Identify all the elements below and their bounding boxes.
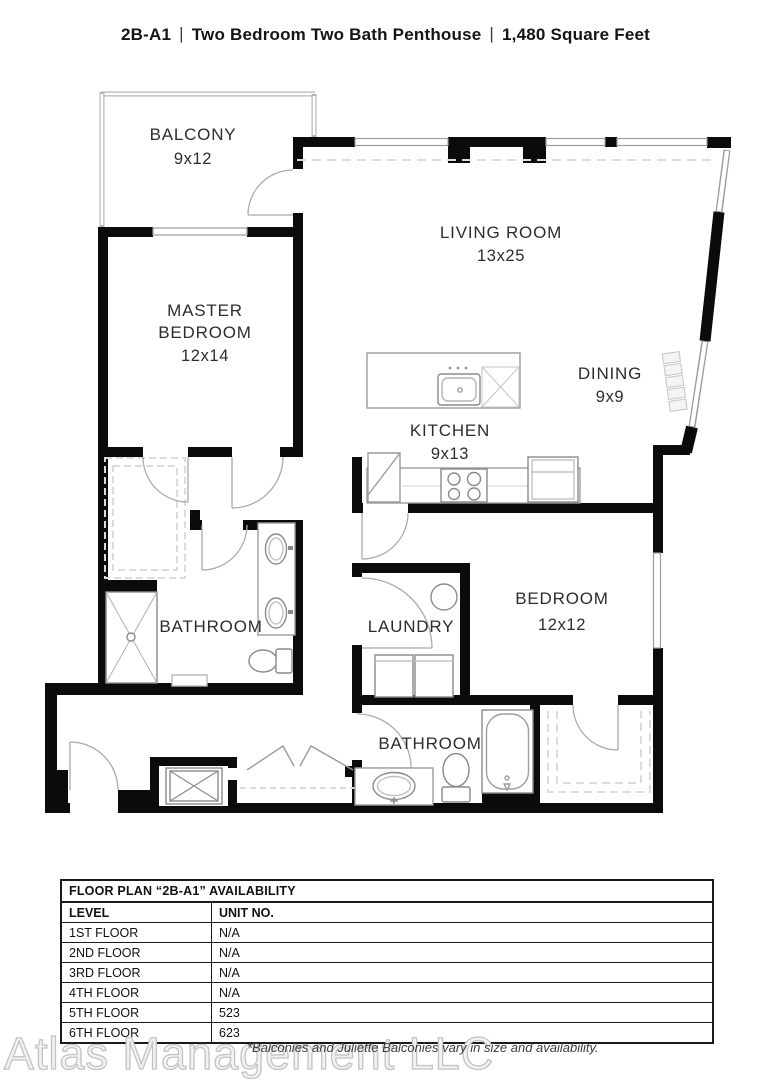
level-cell: 3RD FLOOR [62, 963, 212, 982]
room-label-bath2: BATHROOM [378, 734, 481, 753]
room-label-living: LIVING ROOM [440, 223, 562, 242]
entry-door-arc [70, 742, 118, 790]
fridge-icon [528, 457, 578, 502]
availability-table-title: FLOOR PLAN “2B-A1” AVAILABILITY [62, 881, 712, 903]
balcony-door-arc [248, 170, 293, 215]
room-dims-balcony: 9x12 [174, 150, 212, 168]
room-label-master-1: MASTER [167, 301, 243, 320]
level-cell: 1ST FLOOR [62, 923, 212, 942]
vanity-sink-icon [355, 768, 433, 805]
hall-door-arc [232, 457, 283, 508]
unit-cell: N/A [212, 923, 712, 942]
bathtub-icon [482, 710, 533, 793]
shower-icon [106, 592, 157, 683]
room-label-kitchen: KITCHEN [410, 421, 490, 440]
room-dims-living: 13x25 [477, 247, 525, 265]
unit-cell: N/A [212, 983, 712, 1002]
table-row: 5TH FLOOR 523 [62, 1003, 712, 1023]
radiator-icon [662, 352, 687, 412]
kitchen-island [367, 353, 520, 408]
floor-plan-sheet: 2B-A1|Two Bedroom Two Bath Penthouse|1,4… [0, 0, 771, 1080]
elevator-icon [166, 768, 222, 804]
corridor-door-arc [362, 513, 408, 559]
balcony-disclaimer: *Balconies and Juliette Balconies vary i… [247, 1040, 599, 1055]
toilet-icon [249, 649, 292, 673]
double-vanity-icon [258, 523, 295, 635]
room-label-balcony: BALCONY [150, 125, 237, 144]
toilet-icon-2 [442, 754, 470, 803]
bedroom-closet-door-arc [573, 705, 618, 750]
table-row: 3RD FLOOR N/A [62, 963, 712, 983]
washer-icon [375, 655, 413, 697]
level-cell: 4TH FLOOR [62, 983, 212, 1002]
laundry-door-arc [362, 578, 432, 648]
room-dims-dining: 9x9 [596, 388, 624, 406]
room-dims-kitchen: 9x13 [431, 445, 469, 463]
col-level: LEVEL [62, 903, 212, 922]
room-label-dining: DINING [578, 364, 642, 383]
table-row: 1ST FLOOR N/A [62, 923, 712, 943]
col-unit-no: UNIT NO. [212, 903, 712, 922]
master-bath-door-arc [202, 525, 247, 570]
kitchen-counter [367, 453, 580, 503]
unit-cell: N/A [212, 943, 712, 962]
availability-table: FLOOR PLAN “2B-A1” AVAILABILITY LEVEL UN… [60, 879, 714, 1044]
availability-header-row: LEVEL UNIT NO. [62, 903, 712, 923]
level-cell: 5TH FLOOR [62, 1003, 212, 1022]
water-heater-icon [431, 584, 457, 610]
dryer-icon [415, 655, 453, 697]
room-label-master-2: BEDROOM [158, 323, 251, 342]
room-label-bedroom2: BEDROOM [515, 589, 608, 608]
level-cell: 2ND FLOOR [62, 943, 212, 962]
room-dims-bedroom2: 12x12 [538, 616, 586, 634]
corner-pantry [368, 453, 400, 502]
room-label-laundry: LAUNDRY [368, 617, 455, 636]
unit-cell: N/A [212, 963, 712, 982]
table-row: 2ND FLOOR N/A [62, 943, 712, 963]
bifold-door-icon [247, 746, 353, 770]
room-label-master-bath: BATHROOM [159, 617, 262, 636]
table-row: 4TH FLOOR N/A [62, 983, 712, 1003]
bedroom-closet-shelf [548, 711, 650, 792]
stove-icon [441, 469, 487, 502]
floor-plan-drawing: BALCONY 9x12 LIVING ROOM 13x25 MASTER BE… [0, 0, 771, 862]
master-closet-shelf [105, 458, 185, 578]
master-door-arc [143, 457, 188, 502]
unit-cell: 523 [212, 1003, 712, 1022]
bath-mat [172, 675, 207, 686]
room-dims-master: 12x14 [181, 347, 229, 365]
